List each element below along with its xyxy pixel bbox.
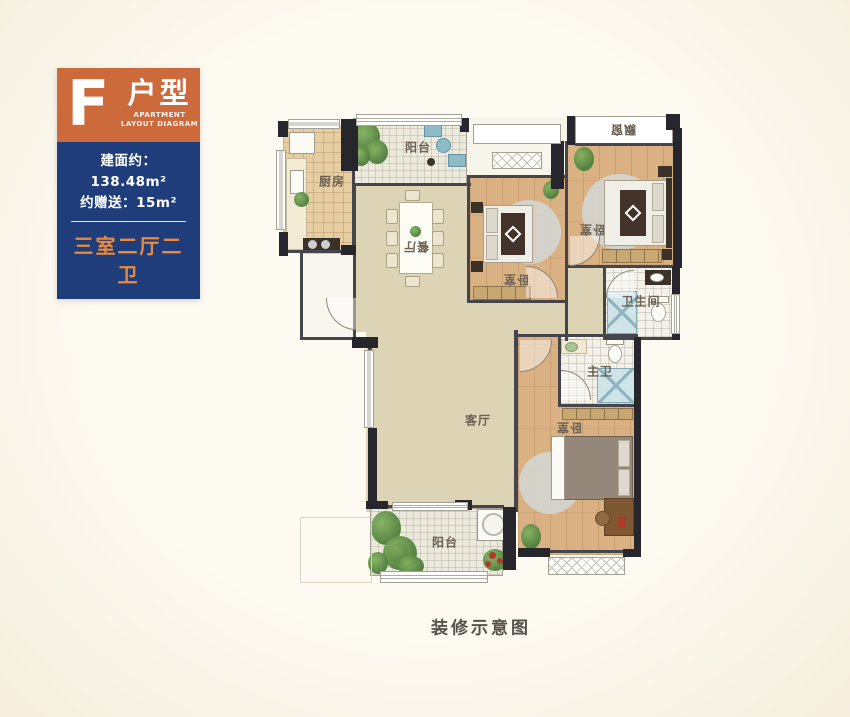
wall-pillar [551,141,564,189]
nightstand [471,261,483,272]
bay-window-bottom [548,557,625,575]
dining-chair [405,190,420,201]
stove-burner [308,240,317,249]
headboard [666,178,672,248]
nightstand [471,202,483,213]
dining-chair [432,209,444,224]
wall-pillar [623,549,641,557]
wall-segment [300,337,356,340]
wall-pillar [673,128,682,268]
window [671,294,680,334]
pillow [618,469,630,496]
window [364,350,374,428]
plan-caption: 装修示意图 [431,614,531,639]
vanity-sink [650,273,664,282]
wall-segment [603,267,606,340]
wall-pillar [518,548,550,557]
pillow [486,208,498,233]
sliding-door-band [392,502,468,511]
entry-door-band [473,124,561,144]
wall-pillar [278,121,288,137]
dining-chair [386,209,398,224]
wall-pillar [503,507,516,570]
kitchen-sink [290,170,304,194]
master-bath-sink [565,342,578,352]
dining-chair [386,231,398,246]
window [276,150,286,230]
wall-segment [575,143,675,146]
living-floor [366,330,516,512]
wall-segment [353,183,471,186]
floor-plan [0,0,850,717]
flower [489,552,496,559]
wall-pillar [279,232,288,256]
window [356,114,462,126]
wall-segment [467,177,470,303]
balcony-chair [448,154,466,167]
wall-segment [514,330,518,512]
bed-fold [551,436,565,500]
dining-chair [405,276,420,287]
wall-segment [467,300,568,303]
desk-chair [595,511,610,526]
balcony-pot [427,158,435,166]
wall-pillar [366,501,388,509]
toilet-bowl [608,345,622,363]
wardrobe [602,249,662,263]
wall-segment [567,265,675,268]
red-accent [617,517,626,528]
wall-pillar [341,245,356,255]
wall-pillar [352,337,378,348]
toilet-bowl [651,303,666,322]
pillow [486,235,498,260]
pillow [652,183,664,211]
dining-chair [432,253,444,268]
bay-window-top [575,116,673,144]
wall-segment [300,253,303,339]
wall-pillar [341,119,358,171]
shower-stall [597,368,635,403]
pillow [618,440,630,467]
master-plant [521,524,541,549]
window [380,571,488,583]
kitchen-plant [294,192,309,207]
wall-pillar [567,116,575,145]
toilet-tank [649,296,669,303]
table-vase [410,226,421,237]
nightstand [658,166,672,177]
wall-pillar [368,428,377,506]
wall-segment [518,334,638,337]
washer-door [482,513,505,536]
corridor-upper-floor [567,268,603,340]
fridge [289,132,315,154]
wall-segment [565,141,568,341]
bedroom-plant [574,147,594,171]
wall-pillar [634,337,641,557]
dining-chair [432,231,444,246]
floorplan-page: F 户型 APARTMENT LAYOUT DIAGRAM 建面约：138.48… [0,0,850,717]
stove-burner [321,240,330,249]
wall-segment [558,404,637,407]
flower [485,561,491,567]
wardrobe [473,286,531,300]
wall-segment [352,168,355,253]
master-dresser [562,408,635,420]
balcony-table [436,138,451,153]
pillow [652,215,664,243]
dining-table [399,202,433,274]
dining-chair [386,253,398,268]
window [288,119,340,129]
entry-cabinet [492,152,542,169]
outdoor-platform [300,517,372,583]
